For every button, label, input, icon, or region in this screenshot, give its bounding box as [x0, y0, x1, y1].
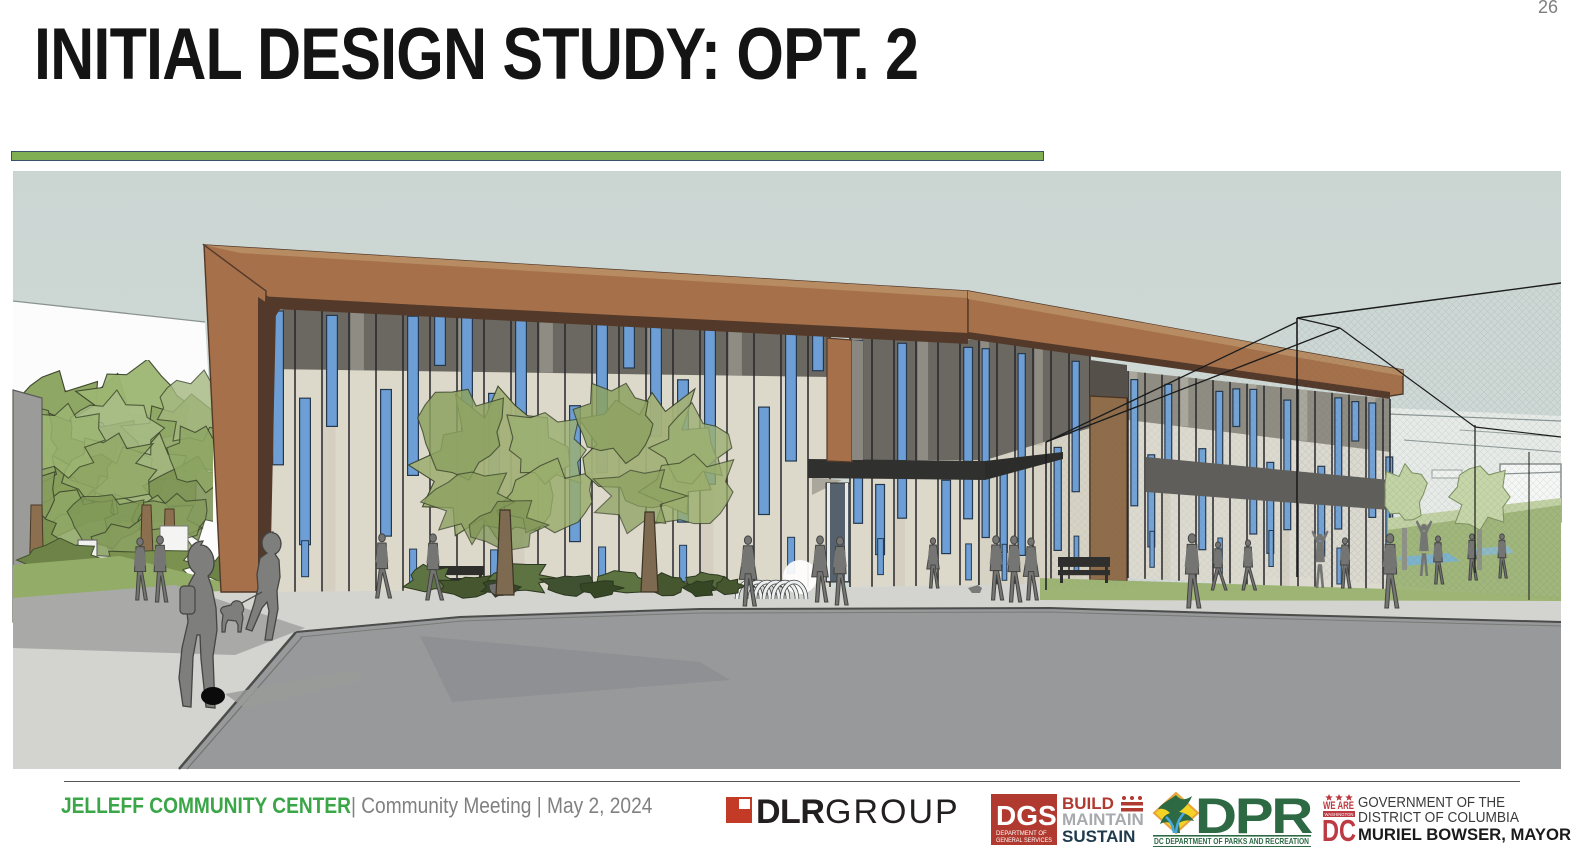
svg-text:WE ARE: WE ARE: [1323, 800, 1354, 812]
svg-text:MURIEL BOWSER, MAYOR: MURIEL BOWSER, MAYOR: [1358, 825, 1571, 844]
svg-text:DC: DC: [1322, 813, 1356, 846]
svg-text:SUSTAIN: SUSTAIN: [1062, 827, 1135, 846]
svg-text:DC DEPARTMENT OF PARKS AND REC: DC DEPARTMENT OF PARKS AND RECREATION: [1154, 837, 1309, 846]
svg-text:DGS: DGS: [996, 800, 1057, 831]
svg-text:DLR: DLR: [756, 795, 824, 827]
svg-text:GENERAL SERVICES: GENERAL SERVICES: [996, 838, 1052, 844]
svg-text:DEPARTMENT OF: DEPARTMENT OF: [996, 831, 1047, 837]
svg-text:GROUP: GROUP: [825, 795, 960, 827]
svg-text:DISTRICT OF COLUMBIA: DISTRICT OF COLUMBIA: [1358, 810, 1519, 826]
svg-text:GOVERNMENT OF THE: GOVERNMENT OF THE: [1358, 795, 1505, 811]
